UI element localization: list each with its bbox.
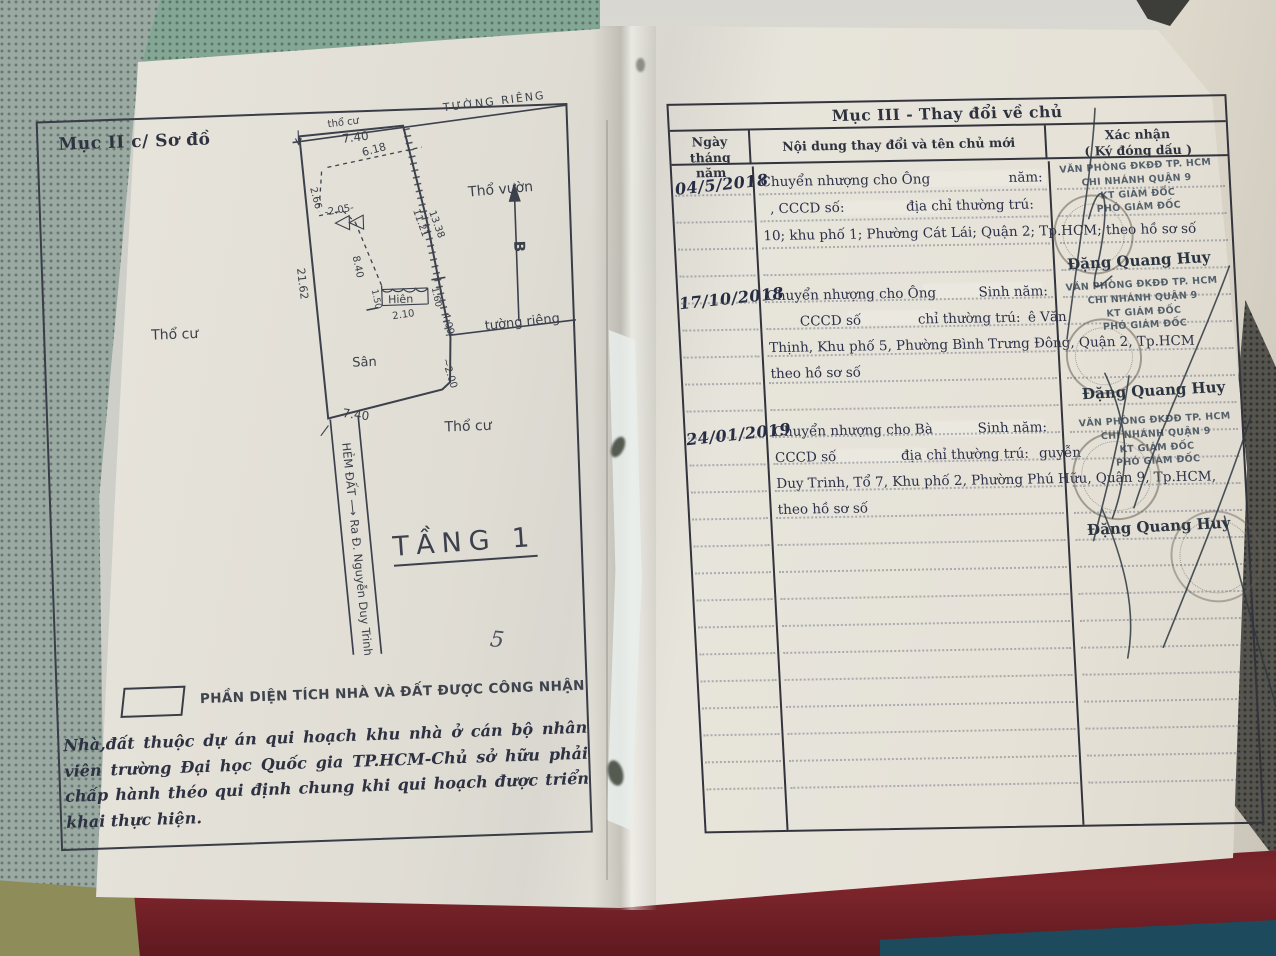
ruled-dotted-line [694,544,770,547]
ruled-dotted-line [779,566,1067,573]
col-header-date: Ngày tháng năm [670,130,752,165]
ruled-dotted-line [780,593,1068,600]
diagram-label: tường riêng [484,311,561,334]
col-header-content: Nội dung thay đổi và tên chủ mới [752,125,1048,164]
ruled-dotted-line [696,598,772,601]
ruled-dotted-line [789,755,1077,762]
planning-note: Nhà,đất thuộc dự án qui hoạch khu nhà ở … [63,715,590,836]
diagram-label: Thổ cư [443,417,493,436]
ruled-dotted-line [770,404,1058,411]
diagram-label: 21.62 [294,267,311,300]
diagram-label: Hiên [388,292,414,306]
ruled-dotted-line [699,652,775,655]
ruled-dotted-line [1087,752,1255,757]
diagram-label: 1.50 [369,288,383,310]
legend-swatch [120,686,185,718]
table-body: 04/5/2018 Chuyển nhượng cho Ông năm: , C… [672,158,1263,831]
ruled-dotted-line [695,571,771,574]
left-page: Mục II c/ Sơ đồ [35,87,595,853]
diagram-label: ~2.00 [439,357,458,390]
ruled-dotted-line [787,728,1075,735]
diagram-label: 7.40 [341,129,369,146]
diagram-label: 7.40 [342,406,370,423]
ruled-dotted-line [682,328,758,331]
row1-line2a: , CCCD số: [770,200,845,217]
margin-partial-stamp [1168,510,1265,604]
ruled-dotted-line [705,760,781,763]
diagram-label: 8.40 [350,255,365,279]
legend-label: PHẦN DIỆN TÍCH NHÀ VÀ ĐẤT ĐƯỢC CÔNG NHẬN [200,678,585,707]
diagram-label: Thổ vườn [466,178,533,201]
ruled-dotted-line [685,382,761,385]
site-plan-diagram: thổ cư7.40TƯỜNG RIÊNG6.182.66-2.05-8.402… [35,87,589,685]
diagram-label: -2.05- [324,202,355,218]
ruled-dotted-line [1080,617,1248,622]
ruled-dotted-line [691,490,767,493]
column-divider-1 [752,166,789,830]
row2-office-stamp-text: VĂN PHÒNG ĐKĐĐ TP. HCMCHI NHÁNH QUẬN 9 K… [1043,273,1243,338]
diagram-label: Sân [352,355,377,371]
ruled-dotted-line [785,674,1073,681]
ruled-dotted-line [679,274,755,277]
ruled-dotted-line [686,409,762,412]
ruled-dotted-line [706,787,782,790]
ruled-dotted-line [1088,779,1256,784]
ruled-dotted-line [698,625,774,628]
ruled-dotted-line [783,647,1071,654]
right-page: Mục III - Thay đổi về chủ Ngày tháng năm… [662,86,1276,856]
diagram-label: B [510,240,528,252]
ownership-change-table: Mục III - Thay đổi về chủ Ngày tháng năm… [666,94,1264,833]
ruled-dotted-line [675,193,751,196]
row1-line1: Chuyển nhượng cho Ông [760,171,930,190]
diagram-label: Thổ cư [150,325,200,344]
ruled-dotted-line [678,247,754,250]
ruled-dotted-line [692,517,768,520]
col-header-confirm: Xác nhận ( Ký đóng dấu ) [1048,122,1228,159]
ruled-dotted-line [790,782,1078,789]
diagram-label: 2.10 [392,308,416,322]
pen-mark: 5 [489,627,506,653]
ruled-dotted-line [701,679,777,682]
ruled-dotted-line [703,733,779,736]
ruled-dotted-line [1083,671,1251,676]
ruled-dotted-line [1085,725,1253,730]
ruled-dotted-line [677,220,753,223]
ruled-dotted-line [778,539,1066,546]
row1-line2b: địa chỉ thường trú: [906,197,1035,215]
diagram-label: thổ cư [327,114,360,131]
ruled-dotted-line [702,706,778,709]
tear-smudge-gutter-top [636,58,645,72]
ruled-dotted-line [763,269,1051,276]
row2-line4: theo hồ sơ số [770,365,861,383]
ruled-dotted-line [782,620,1070,627]
diagram-label: 4.09 [440,312,456,336]
ruled-dotted-line [1081,644,1249,649]
ruled-dotted-line [684,355,760,358]
ruled-dotted-line [786,701,1074,708]
ruled-dotted-line [689,463,765,466]
photo-of-open-land-certificate: Mục II c/ Sơ đồ [0,0,1276,956]
ruled-dotted-line [1084,698,1252,703]
